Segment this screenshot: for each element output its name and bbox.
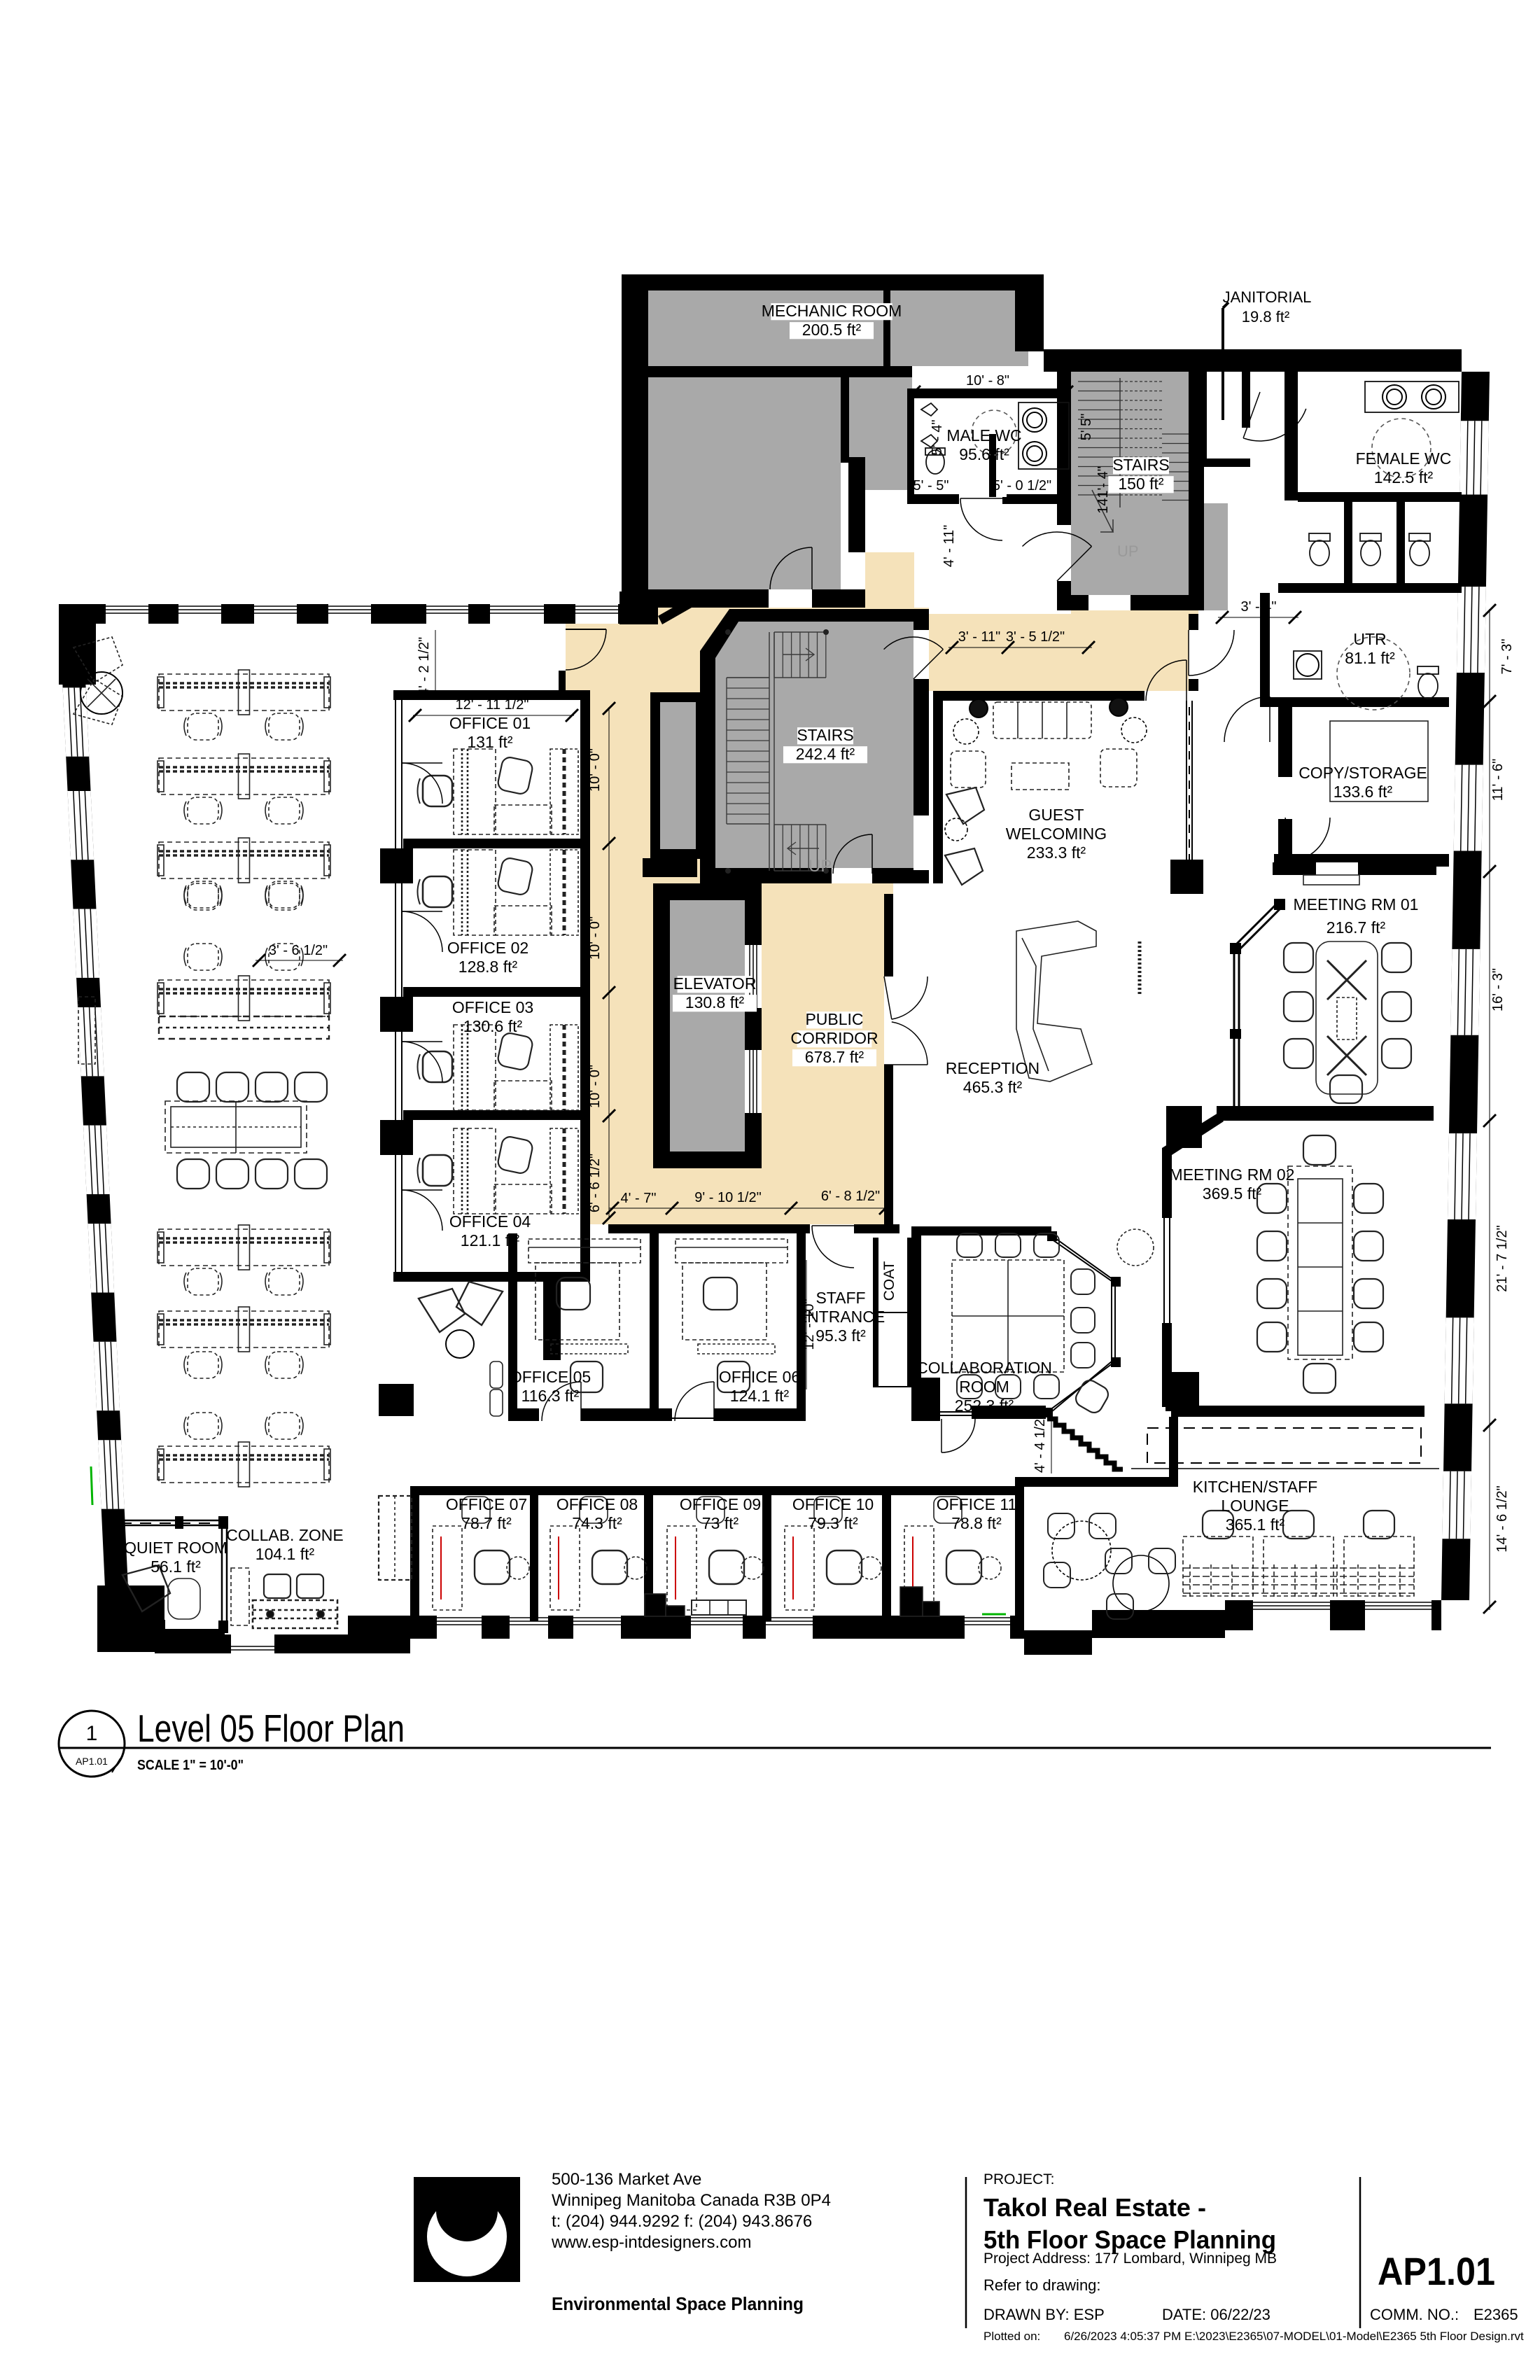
svg-text:10' - 8": 10' - 8" xyxy=(966,373,1009,388)
svg-text:AP1.01: AP1.01 xyxy=(76,1756,108,1767)
svg-text:5th Floor Space Planning: 5th Floor Space Planning xyxy=(983,2225,1276,2254)
svg-text:MEETING RM 01: MEETING RM 01 xyxy=(1294,895,1419,913)
svg-text:242.4 ft²: 242.4 ft² xyxy=(796,745,855,763)
svg-text:OFFICE 04: OFFICE 04 xyxy=(449,1212,531,1231)
svg-text:MEETING RM 02: MEETING RM 02 xyxy=(1170,1165,1295,1184)
svg-text:74.3 ft²: 74.3 ft² xyxy=(572,1514,622,1532)
svg-text:3' - 6 1/2": 3' - 6 1/2" xyxy=(269,943,328,958)
svg-text:MECHANIC ROOM: MECHANIC ROOM xyxy=(762,302,902,320)
svg-text:PROJECT:: PROJECT: xyxy=(983,2171,1055,2187)
svg-text:KITCHEN/STAFF: KITCHEN/STAFF xyxy=(1193,1478,1317,1496)
svg-text:COLLAB. ZONE: COLLAB. ZONE xyxy=(226,1526,343,1544)
svg-text:1: 1 xyxy=(86,1722,98,1745)
svg-text:14' - 6 1/2": 14' - 6 1/2" xyxy=(1494,1485,1510,1552)
svg-text:10' - 0": 10' - 0" xyxy=(587,1065,603,1108)
svg-text:233.3 ft²: 233.3 ft² xyxy=(1027,843,1086,862)
svg-text:STAIRS: STAIRS xyxy=(1112,456,1169,474)
svg-text:OFFICE 02: OFFICE 02 xyxy=(447,939,528,957)
svg-text:465.3 ft²: 465.3 ft² xyxy=(963,1078,1023,1096)
svg-text:78.7 ft²: 78.7 ft² xyxy=(461,1514,512,1532)
svg-text:56.1 ft²: 56.1 ft² xyxy=(150,1557,201,1576)
svg-text:Level 05 Floor Plan: Level 05 Floor Plan xyxy=(137,1707,405,1750)
svg-text:252.3 ft²: 252.3 ft² xyxy=(955,1396,1014,1415)
svg-text:Takol Real Estate -: Takol Real Estate - xyxy=(983,2193,1206,2222)
svg-text:11' - 6": 11' - 6" xyxy=(1490,759,1506,801)
svg-text:131 ft²: 131 ft² xyxy=(467,733,513,751)
svg-text:10' - 0": 10' - 0" xyxy=(587,916,603,960)
svg-text:OFFICE 03: OFFICE 03 xyxy=(452,998,533,1016)
svg-text:150 ft²: 150 ft² xyxy=(1118,475,1164,493)
svg-text:COPY/STORAGE: COPY/STORAGE xyxy=(1298,764,1427,782)
svg-text:6/26/2023 4:05:37 PM E:\2023\: 6/26/2023 4:05:37 PM E:\2023\E2365\07-MO… xyxy=(1064,2330,1524,2343)
svg-text:Project Address: 177 Lombard,: Project Address: 177 Lombard, Winnipeg M… xyxy=(983,2250,1277,2267)
svg-text:16' - 3": 16' - 3" xyxy=(1490,968,1506,1011)
svg-text:Refer to drawing:: Refer to drawing: xyxy=(983,2276,1101,2294)
svg-text:5' - 4": 5' - 4" xyxy=(930,420,945,456)
svg-text:133.6 ft²: 133.6 ft² xyxy=(1333,783,1393,801)
svg-text:QUIET ROOM: QUIET ROOM xyxy=(124,1539,227,1557)
svg-text:5' - 0 1/2": 5' - 0 1/2" xyxy=(993,478,1051,493)
svg-text:OFFICE 07: OFFICE 07 xyxy=(446,1495,527,1513)
svg-text:124.1 ft²: 124.1 ft² xyxy=(730,1387,790,1405)
svg-text:STAIRS: STAIRS xyxy=(797,726,853,744)
svg-text:369.5 ft²: 369.5 ft² xyxy=(1203,1184,1262,1203)
svg-text:130.6 ft²: 130.6 ft² xyxy=(463,1017,523,1035)
svg-text:9' - 10 1/2": 9' - 10 1/2" xyxy=(694,1190,761,1205)
svg-text:216.7 ft²: 216.7 ft² xyxy=(1326,918,1386,937)
svg-text:COMM. NO.:: COMM. NO.: xyxy=(1370,2306,1459,2323)
svg-text:ENTRANCE: ENTRANCE xyxy=(797,1308,885,1326)
svg-text:6' - 6 1/2": 6' - 6 1/2" xyxy=(587,1154,603,1212)
svg-text:WELCOMING: WELCOMING xyxy=(1006,825,1107,843)
svg-text:95.3 ft²: 95.3 ft² xyxy=(815,1326,866,1345)
svg-text:130.8 ft²: 130.8 ft² xyxy=(685,993,745,1011)
svg-text:E2365: E2365 xyxy=(1473,2306,1518,2323)
svg-text:4' - 2 1/2": 4' - 2 1/2" xyxy=(416,637,432,696)
svg-text:JANITORIAL: JANITORIAL xyxy=(1223,288,1312,306)
svg-text:OFFICE 08: OFFICE 08 xyxy=(556,1495,638,1513)
svg-text:104.1 ft²: 104.1 ft² xyxy=(255,1545,315,1563)
svg-text:3' - 5 1/2": 3' - 5 1/2" xyxy=(1006,629,1065,645)
svg-text:78.8 ft²: 78.8 ft² xyxy=(951,1514,1002,1532)
svg-text:3' - 11": 3' - 11" xyxy=(958,629,1001,645)
svg-text:Plotted on:: Plotted on: xyxy=(983,2330,1040,2343)
svg-text:FEMALE WC: FEMALE WC xyxy=(1356,449,1452,468)
svg-text:200.5 ft²: 200.5 ft² xyxy=(802,321,862,339)
svg-text:73 ft²: 73 ft² xyxy=(702,1514,739,1532)
svg-text:ELEVATOR: ELEVATOR xyxy=(673,974,757,993)
svg-text:116.3 ft²: 116.3 ft² xyxy=(521,1387,580,1405)
svg-text:GUEST: GUEST xyxy=(1028,806,1084,824)
svg-text:OFFICE 06: OFFICE 06 xyxy=(719,1368,800,1386)
svg-text:OFFICE 09: OFFICE 09 xyxy=(680,1495,761,1513)
svg-text:COAT: COAT xyxy=(881,1261,897,1301)
svg-text:UTR: UTR xyxy=(1353,630,1386,648)
svg-text:500-136 Market Ave: 500-136 Market Ave xyxy=(552,2170,701,2189)
svg-text:OFFICE 05: OFFICE 05 xyxy=(510,1368,591,1386)
svg-text:PUBLIC: PUBLIC xyxy=(805,1010,863,1028)
svg-text:OFFICE 01: OFFICE 01 xyxy=(449,714,531,732)
svg-text:Winnipeg Manitoba Canada R3: Winnipeg Manitoba Canada R3B 0P4 xyxy=(552,2191,831,2210)
svg-text:6' - 8 1/2": 6' - 8 1/2" xyxy=(821,1189,880,1204)
svg-text:DATE: 06/22/23: DATE: 06/22/23 xyxy=(1162,2306,1270,2323)
svg-text:5' - 5": 5' - 5" xyxy=(913,478,949,493)
svg-text:LOUNGE: LOUNGE xyxy=(1221,1497,1289,1515)
svg-text:UP: UP xyxy=(1117,542,1139,560)
svg-text:21' - 7 1/2": 21' - 7 1/2" xyxy=(1494,1225,1510,1291)
svg-text:121.1 ft²: 121.1 ft² xyxy=(461,1231,520,1249)
svg-text:STAFF: STAFF xyxy=(815,1289,865,1307)
svg-text:19.8 ft²: 19.8 ft² xyxy=(1242,308,1289,325)
svg-text:SCALE 1" = 10'-0": SCALE 1" = 10'-0" xyxy=(137,1758,244,1773)
svg-text:Environmental Space Planning: Environmental Space Planning xyxy=(552,2293,804,2314)
svg-text:t: (204) 944.9292 f: (204): t: (204) 944.9292 f: (204) 943.8676 xyxy=(552,2212,812,2231)
svg-text:5' 5": 5' 5" xyxy=(1079,414,1094,441)
svg-text:12' - 11 1/2": 12' - 11 1/2" xyxy=(455,697,528,713)
svg-text:10' - 0": 10' - 0" xyxy=(587,748,603,792)
svg-text:81.1 ft²: 81.1 ft² xyxy=(1345,649,1395,667)
svg-text:COLLABORATION: COLLABORATION xyxy=(916,1359,1052,1377)
svg-text:www.esp-intdesigners.com: www.esp-intdesigners.com xyxy=(551,2233,751,2252)
svg-text:CORRIDOR: CORRIDOR xyxy=(790,1029,878,1047)
svg-text:ROOM: ROOM xyxy=(959,1378,1009,1396)
svg-text:RECEPTION: RECEPTION xyxy=(946,1059,1039,1077)
svg-text:128.8 ft²: 128.8 ft² xyxy=(458,958,518,976)
svg-text:3' - 4": 3' - 4" xyxy=(1241,599,1277,615)
svg-text:142.5 ft²: 142.5 ft² xyxy=(1374,468,1434,486)
svg-text:DRAWN BY: ESP: DRAWN BY: ESP xyxy=(983,2306,1105,2323)
svg-text:79.3 ft²: 79.3 ft² xyxy=(808,1514,858,1532)
svg-text:MALE WC: MALE WC xyxy=(946,426,1021,444)
svg-text:4' - 4 1/2": 4' - 4 1/2" xyxy=(1032,1414,1048,1473)
svg-text:AP1.01: AP1.01 xyxy=(1378,2249,1495,2293)
svg-text:UP: UP xyxy=(808,857,832,876)
svg-text:95.6 ft²: 95.6 ft² xyxy=(959,445,1009,463)
svg-text:4' - 7": 4' - 7" xyxy=(621,1191,657,1206)
svg-text:4' - 11": 4' - 11" xyxy=(941,525,957,568)
svg-text:OFFICE 11: OFFICE 11 xyxy=(937,1495,1017,1513)
svg-text:365.1 ft²: 365.1 ft² xyxy=(1226,1515,1285,1534)
svg-text:7' - 3": 7' - 3" xyxy=(1499,639,1515,675)
svg-text:OFFICE 10: OFFICE 10 xyxy=(792,1495,874,1513)
svg-text:678.7 ft²: 678.7 ft² xyxy=(805,1048,864,1066)
